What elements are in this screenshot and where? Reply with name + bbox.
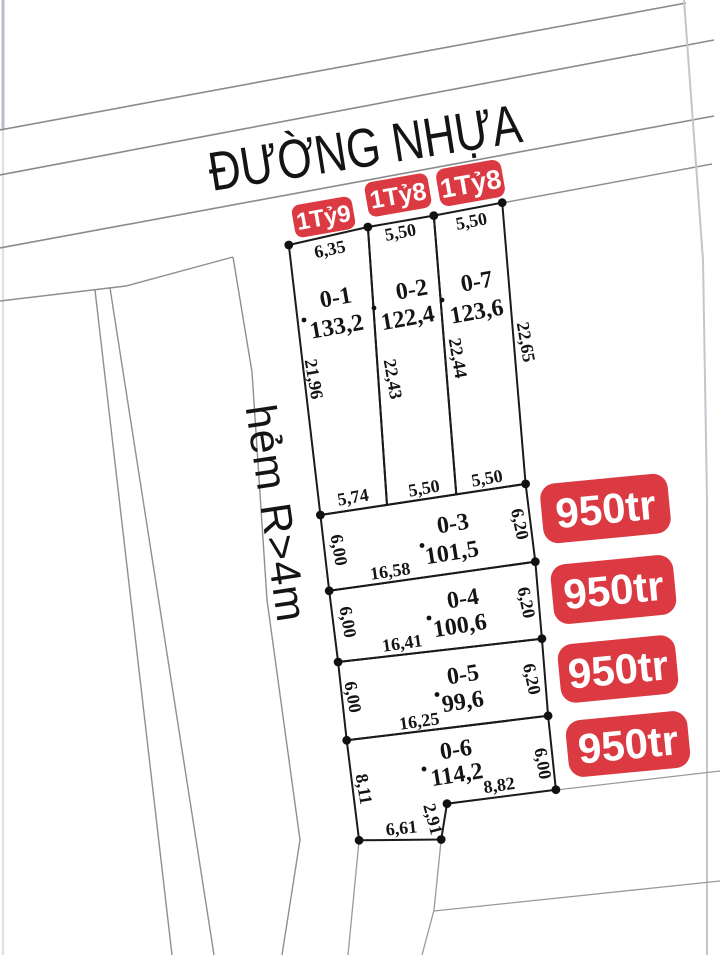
svg-text:0-2: 0-2 <box>394 275 430 306</box>
svg-text:0-3: 0-3 <box>435 509 471 540</box>
svg-text:950tr: 950tr <box>566 641 670 697</box>
svg-text:6,61: 6,61 <box>385 816 418 839</box>
svg-text:950tr: 950tr <box>553 481 657 537</box>
svg-text:950tr: 950tr <box>576 716 680 772</box>
svg-text:0-5: 0-5 <box>445 660 481 691</box>
svg-text:0-7: 0-7 <box>459 267 495 298</box>
svg-text:950tr: 950tr <box>561 562 665 618</box>
svg-text:0-1: 0-1 <box>318 283 354 314</box>
